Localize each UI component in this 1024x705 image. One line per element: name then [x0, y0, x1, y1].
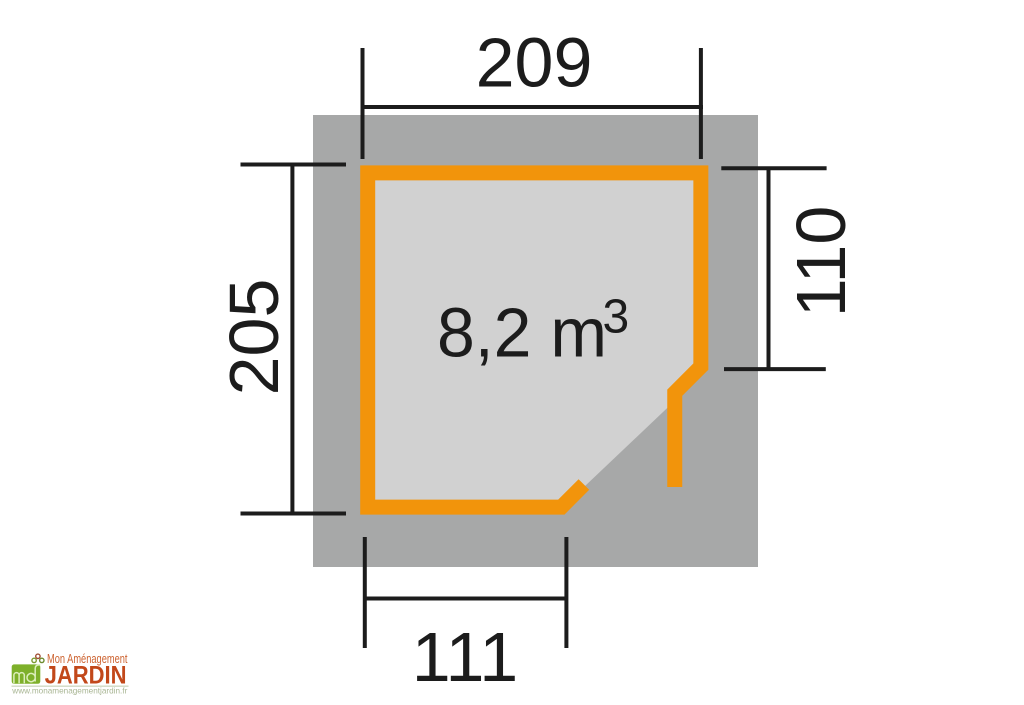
- svg-text:8,2 m: 8,2 m: [437, 294, 607, 372]
- svg-text:209: 209: [476, 24, 593, 102]
- svg-text:3: 3: [603, 291, 630, 344]
- svg-text:www.monamenagementjardin.fr: www.monamenagementjardin.fr: [11, 686, 127, 696]
- svg-text:110: 110: [782, 206, 860, 318]
- svg-text:111: 111: [412, 618, 518, 696]
- svg-text:205: 205: [215, 279, 293, 396]
